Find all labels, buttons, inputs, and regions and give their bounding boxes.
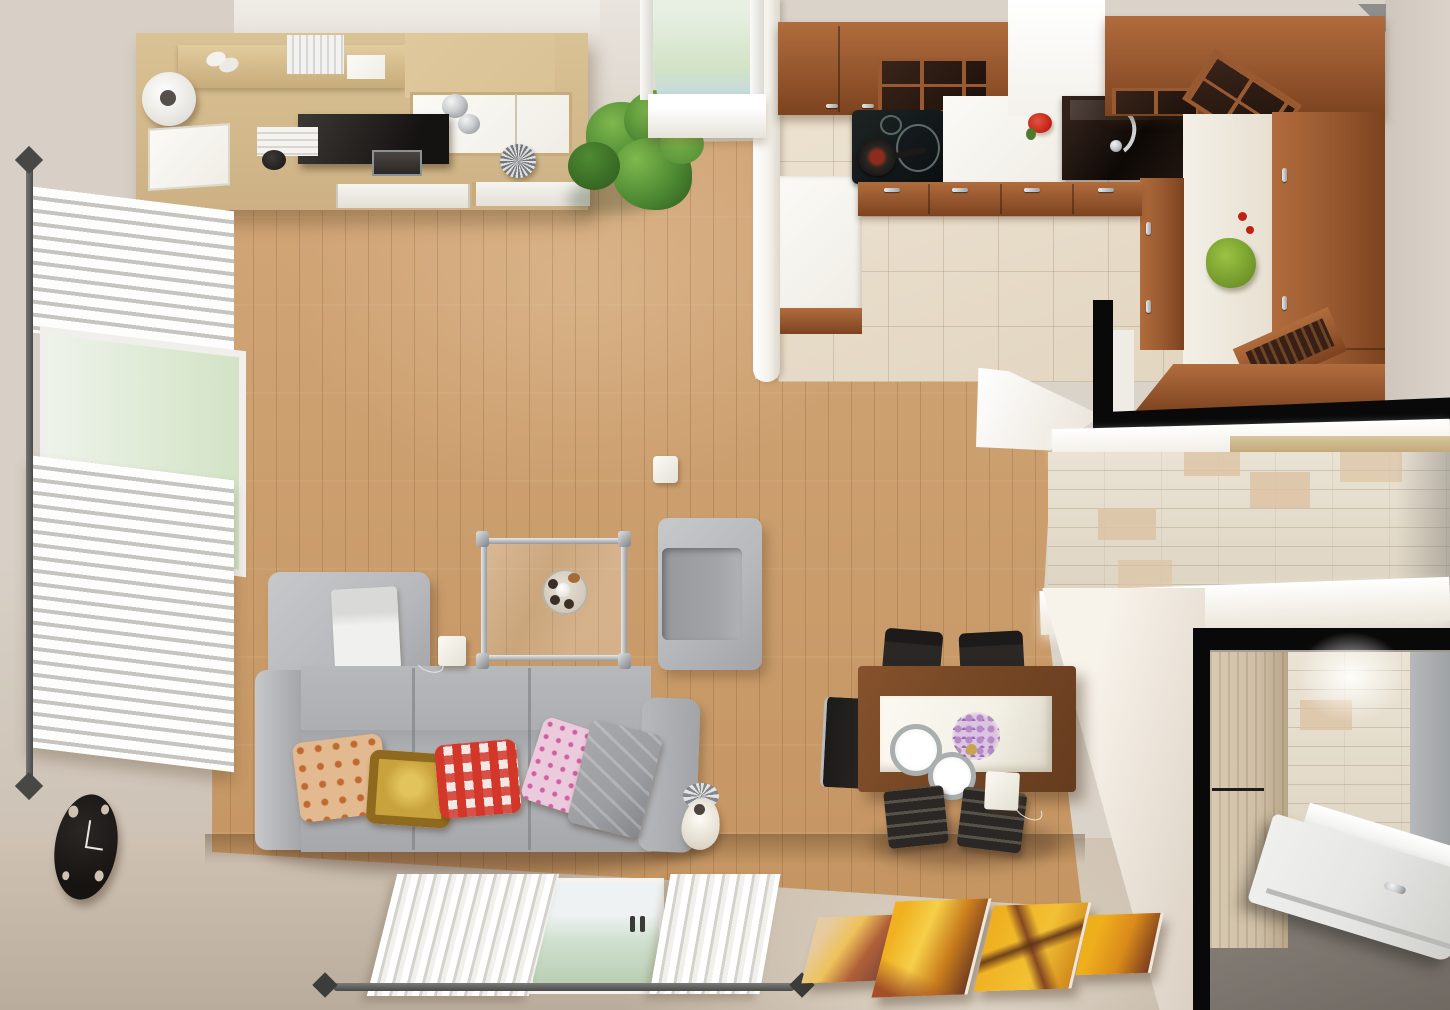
- base-column-handle2: [1146, 300, 1151, 313]
- light-switch: [653, 456, 678, 483]
- kitchen-base-cabinet-left: [780, 308, 862, 334]
- top-window-glass: [646, 0, 760, 98]
- apartment-render: [0, 0, 1450, 1010]
- entry-black-left: [1193, 628, 1210, 1010]
- kitchen-tall-cabinet-white: [780, 176, 862, 310]
- drawer-seam1: [928, 184, 930, 214]
- drawer-handle3: [1024, 188, 1040, 192]
- window-handle-2: [640, 916, 645, 932]
- flower-centerpiece: [952, 712, 1000, 760]
- drawer-seam2: [1000, 184, 1002, 214]
- cabinet-a-door-seam: [838, 26, 840, 112]
- chrome-bowl-2: [458, 114, 480, 134]
- pillow-red-gingham: [434, 739, 522, 820]
- flower-vase: [966, 744, 977, 755]
- table-leg-cap: [618, 653, 631, 669]
- cabinet-a-handle2: [862, 104, 874, 108]
- drawer-seam3: [1072, 184, 1074, 214]
- unit-book-stack: [287, 35, 344, 74]
- unit-dark-bowl: [262, 150, 286, 170]
- clock-hand-hour: [85, 846, 103, 851]
- table-rail-bottom: [484, 655, 624, 661]
- tomato-greens: [1026, 128, 1036, 140]
- clock-hand-minute: [85, 820, 91, 848]
- unit-left-cabinet: [148, 123, 230, 191]
- candle-dark: [550, 595, 560, 605]
- hall-gray-shade: [1396, 452, 1450, 594]
- drawer-handle1: [884, 188, 900, 192]
- table-leg-cap: [476, 653, 489, 669]
- plant-leaf-cluster: [568, 142, 620, 190]
- green-salad-bowl: [1206, 238, 1256, 288]
- right-cabinet-handle1: [1282, 168, 1287, 182]
- clock-cutout: [94, 870, 105, 882]
- table-leg-cap: [618, 531, 631, 547]
- sink-faucet-base: [1110, 140, 1122, 152]
- unit-drawers-1: [336, 184, 470, 208]
- hall-tile-accent3: [1250, 472, 1310, 508]
- artwork-panel-4: [1075, 913, 1163, 976]
- table-rail-left: [481, 541, 487, 661]
- table-rail-top: [484, 538, 624, 544]
- curtain-left: [367, 874, 559, 996]
- hall-tile-accent4: [1340, 452, 1402, 482]
- chaise-throw: [331, 586, 401, 671]
- sconce-living: [438, 636, 466, 666]
- armchair-seat-recess: [662, 548, 742, 640]
- top-window-frame-left: [640, 0, 653, 100]
- chrome-sputnik-bowl: [500, 144, 536, 178]
- wall-top-black-stub: [1093, 300, 1113, 418]
- unit-door-seam: [515, 94, 517, 148]
- cabinet-a-handle: [826, 104, 838, 108]
- clock-cutout: [68, 805, 80, 818]
- coffee-table: [476, 531, 632, 670]
- hall-tile-accent5: [1118, 560, 1172, 590]
- right-cabinet-handle2: [1282, 296, 1287, 310]
- entry-spotlight-glow: [1296, 632, 1406, 722]
- candle-white: [556, 583, 570, 597]
- curtain-rod-left: [26, 166, 33, 790]
- unit-white-box: [347, 55, 385, 79]
- burner-ring-small: [880, 115, 902, 135]
- curtain-right: [649, 874, 780, 994]
- floor-lamp-bulb: [694, 804, 705, 815]
- top-window-sill: [648, 94, 766, 138]
- table-leg-cap: [476, 531, 489, 547]
- clock-cutout: [62, 871, 70, 881]
- unit-wood-block: [405, 33, 555, 98]
- hall-tile-accent1: [1098, 508, 1156, 540]
- candle-dark: [564, 599, 574, 609]
- frying-pan: [858, 138, 896, 176]
- vase-opening: [160, 90, 176, 106]
- tv-stand: [372, 150, 422, 176]
- kitchen-base-column: [1140, 178, 1184, 350]
- hall-tile-accent2: [1184, 452, 1240, 476]
- candle-amber: [568, 573, 580, 583]
- top-window-frame-right: [750, 0, 764, 100]
- cherry-fruit-1: [1238, 212, 1247, 221]
- table-rail-right: [621, 541, 627, 661]
- cherry-fruit-2: [1246, 226, 1254, 234]
- wall-white-sliver: [1113, 330, 1134, 416]
- drawer-handle4: [1098, 188, 1114, 192]
- drawer-handle2: [952, 188, 968, 192]
- clock-cutout: [100, 804, 109, 815]
- dining-chair-bottom-1: [883, 785, 949, 849]
- window-handle-1: [630, 916, 635, 932]
- curtain-rod-bottom: [333, 983, 795, 991]
- kitchen-right-wall: [1385, 0, 1450, 402]
- left-blind-lower: [28, 455, 234, 772]
- wardrobe-handle: [1212, 788, 1264, 791]
- base-column-handle1: [1146, 222, 1151, 235]
